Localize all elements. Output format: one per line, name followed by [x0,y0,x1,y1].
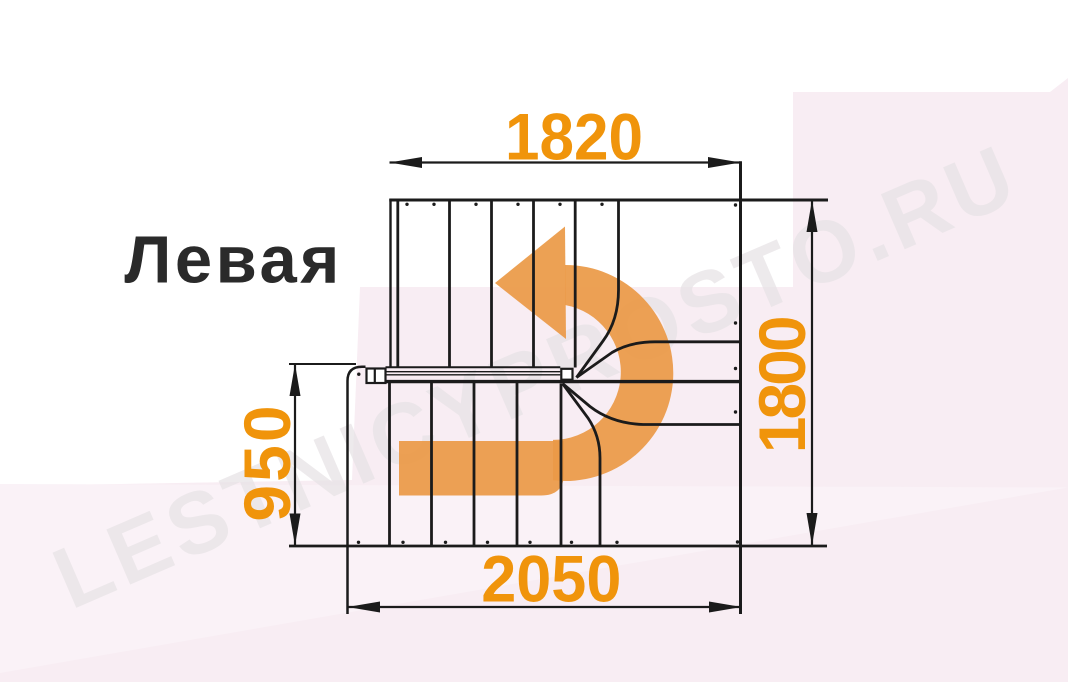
svg-text:950: 950 [230,402,304,521]
svg-text:2050: 2050 [481,542,621,616]
svg-text:1800: 1800 [745,318,819,453]
svg-text:1820: 1820 [505,100,643,174]
svg-text:Левая: Левая [124,222,342,297]
